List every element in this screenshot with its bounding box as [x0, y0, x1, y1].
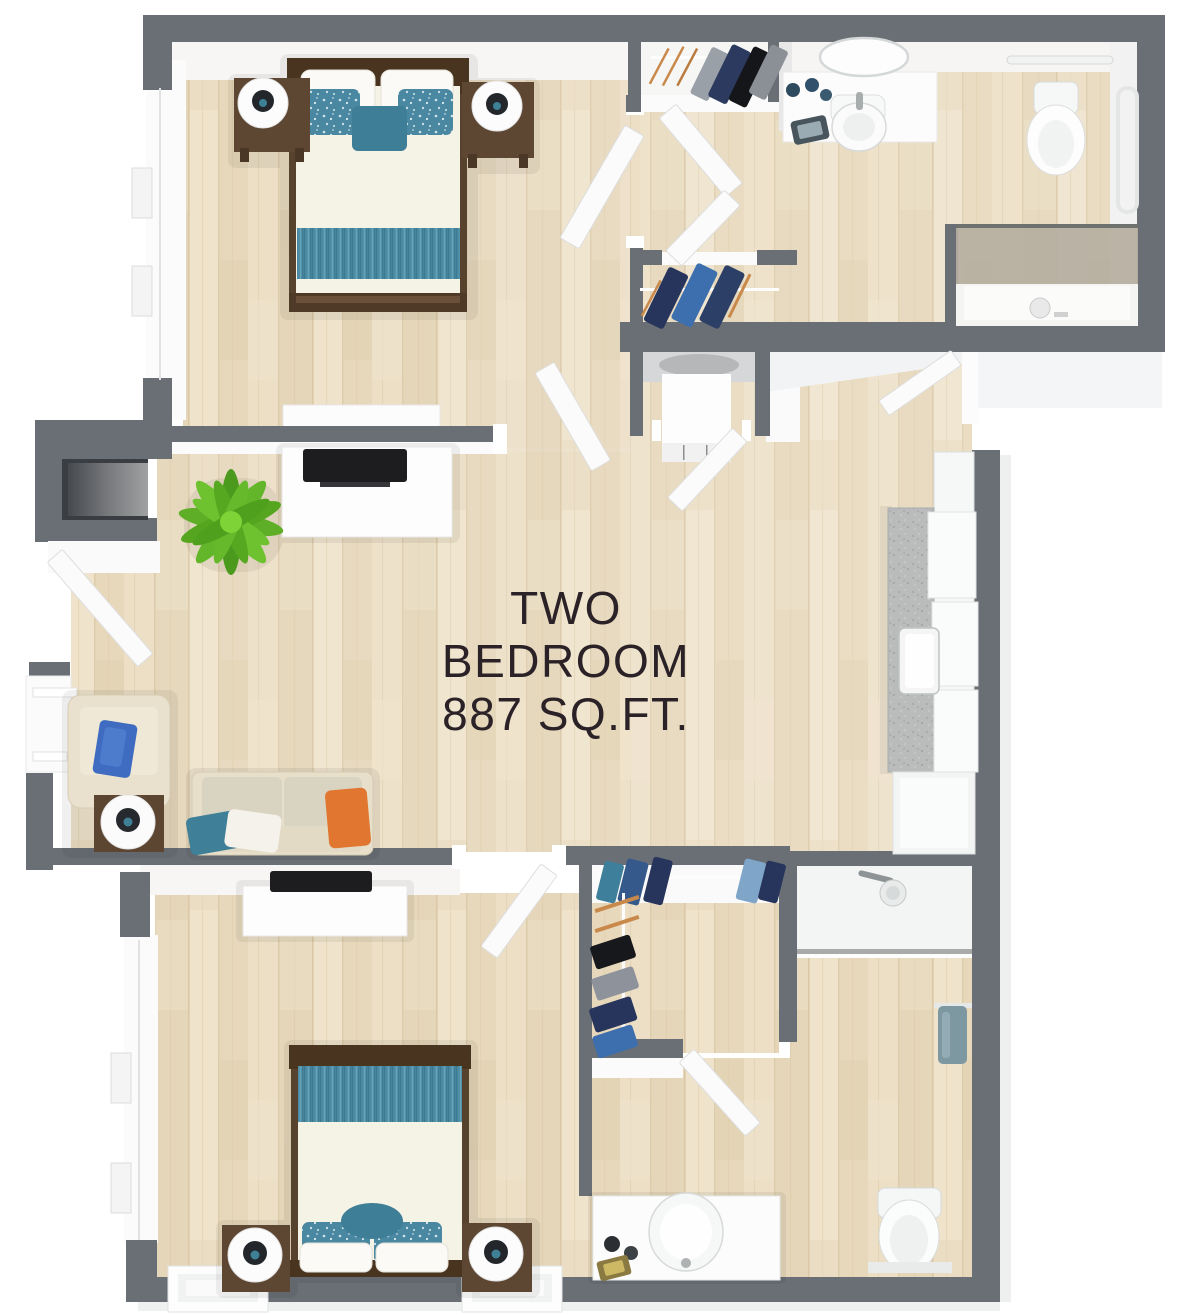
svg-text:TWO: TWO [510, 582, 622, 634]
svg-text:BEDROOM: BEDROOM [442, 635, 690, 687]
svg-text:887 SQ.FT.: 887 SQ.FT. [442, 688, 690, 740]
